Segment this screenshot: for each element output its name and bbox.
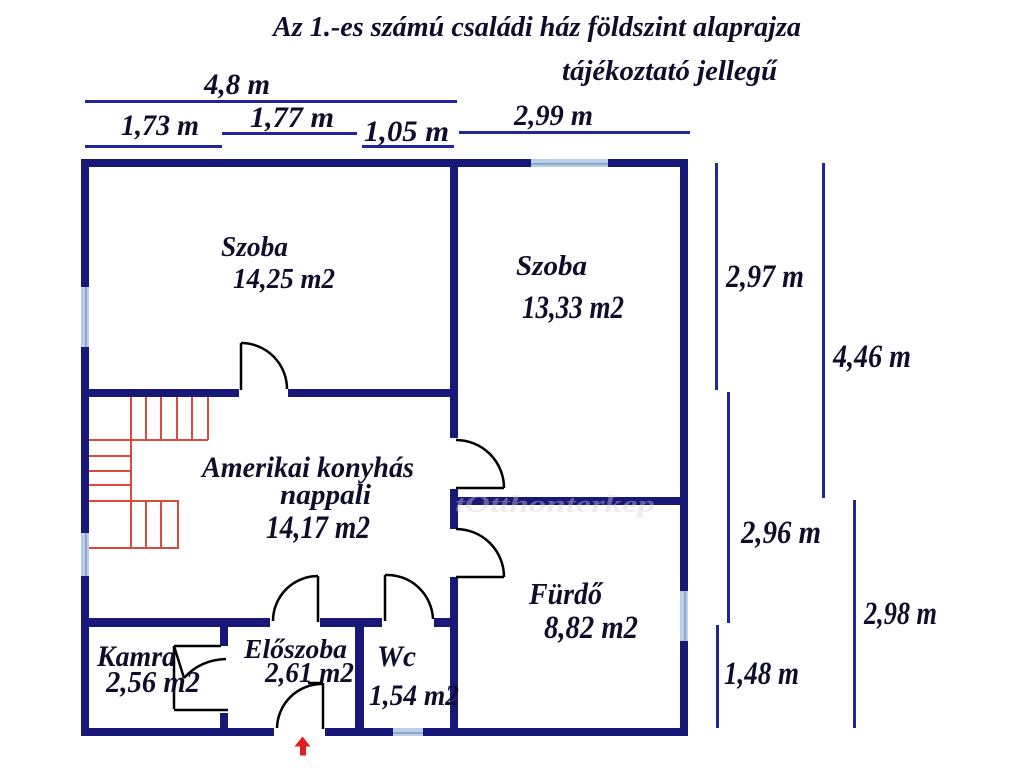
svg-text:14,17 m2: 14,17 m2 — [266, 510, 370, 546]
svg-text:Szoba: Szoba — [221, 232, 288, 263]
svg-text:Az 1.-es számú családi ház föl: Az 1.-es számú családi ház földszint ala… — [271, 11, 801, 43]
svg-text:1,73 m: 1,73 m — [121, 109, 199, 142]
svg-text:8,82 m2: 8,82 m2 — [544, 610, 638, 646]
svg-text:13,33 m2: 13,33 m2 — [522, 290, 624, 326]
svg-text:2,61 m2: 2,61 m2 — [264, 657, 354, 689]
svg-text:1,77 m: 1,77 m — [250, 101, 334, 134]
svg-text:1,48 m: 1,48 m — [724, 656, 799, 692]
svg-text:Szoba: Szoba — [516, 251, 587, 282]
svg-text:2,97 m: 2,97 m — [725, 259, 804, 295]
svg-text:4,8 m: 4,8 m — [203, 68, 270, 101]
svg-text:4,46 m: 4,46 m — [832, 339, 911, 375]
svg-text:2,96 m: 2,96 m — [740, 515, 821, 551]
svg-text:tájékoztató jellegű: tájékoztató jellegű — [562, 55, 778, 87]
svg-text:2,56 m2: 2,56 m2 — [105, 664, 200, 699]
svg-text:2,98 m: 2,98 m — [863, 596, 937, 632]
svg-text:nappali: nappali — [280, 479, 371, 511]
svg-text:2,99 m: 2,99 m — [513, 99, 593, 132]
svg-text:1,54 m2: 1,54 m2 — [369, 679, 459, 712]
svg-text:1,05 m: 1,05 m — [364, 115, 449, 148]
svg-text:14,25 m2: 14,25 m2 — [233, 264, 335, 295]
svg-text:Wc: Wc — [377, 640, 416, 673]
svg-text:tOtthonterkep: tOtthonterkep — [455, 492, 655, 518]
svg-text:Fürdő: Fürdő — [528, 576, 604, 611]
